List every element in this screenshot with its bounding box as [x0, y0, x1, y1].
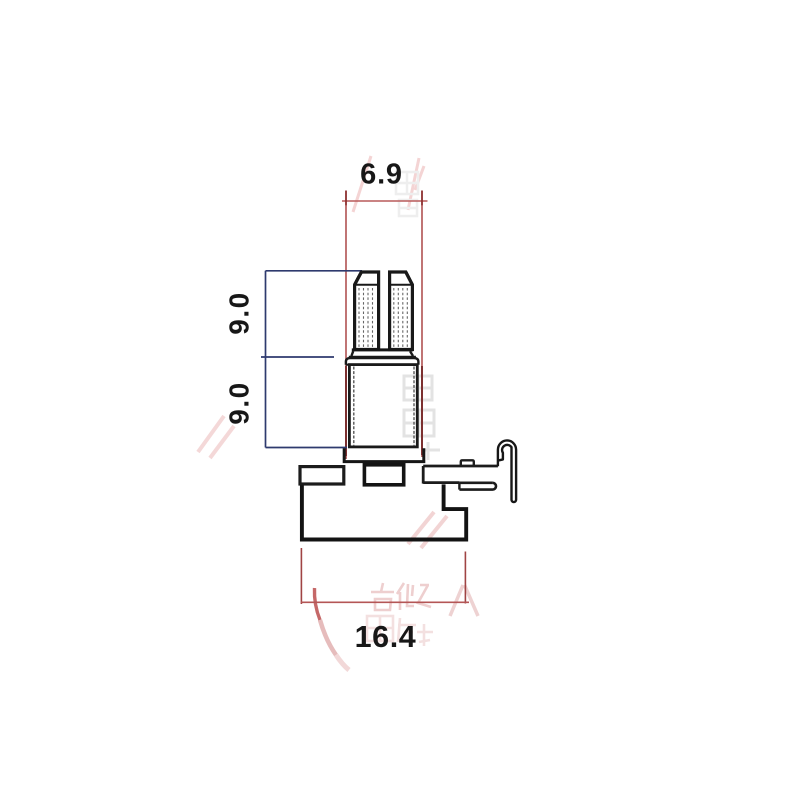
svg-text:9.0: 9.0: [224, 291, 255, 334]
svg-text:16.4: 16.4: [355, 620, 417, 654]
svg-text:6.9: 6.9: [360, 159, 403, 191]
svg-text:9.0: 9.0: [224, 381, 255, 424]
